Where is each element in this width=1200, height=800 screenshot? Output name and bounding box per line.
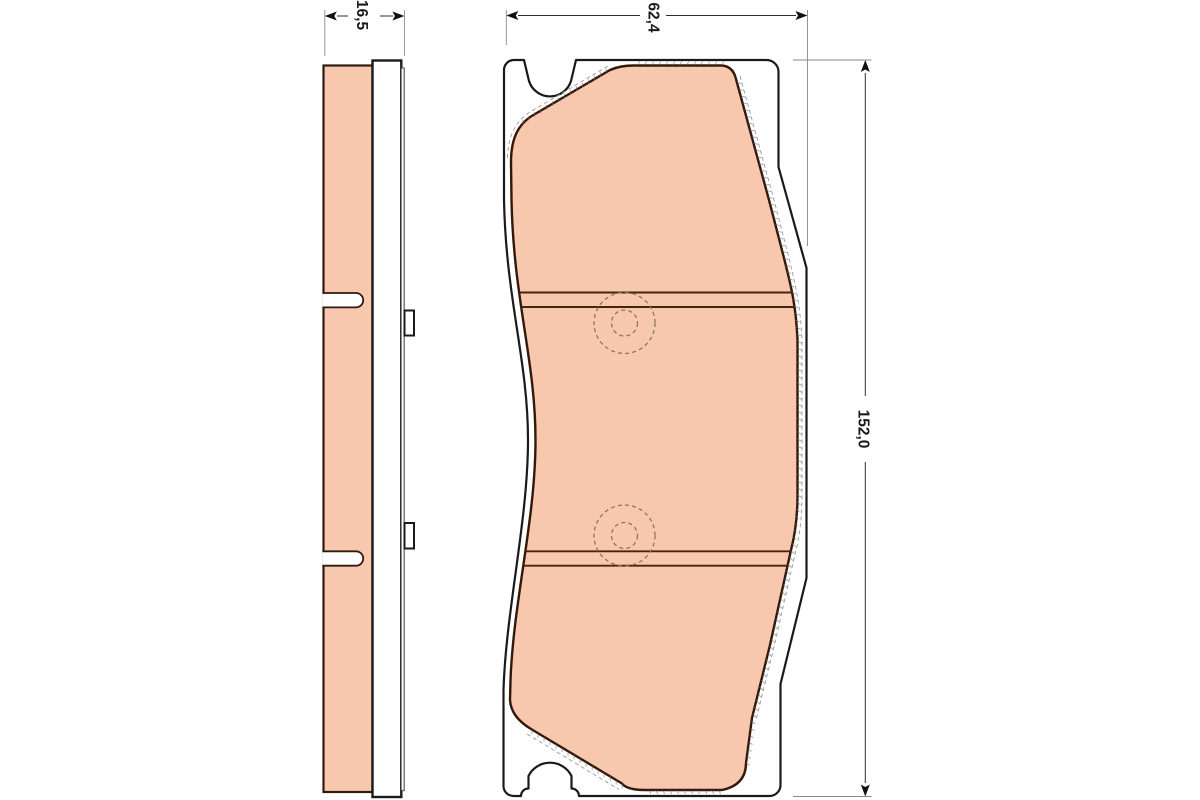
svg-text:152,0: 152,0 — [855, 410, 872, 449]
svg-text:62,4: 62,4 — [645, 2, 662, 33]
svg-text:16,5: 16,5 — [353, 0, 370, 30]
